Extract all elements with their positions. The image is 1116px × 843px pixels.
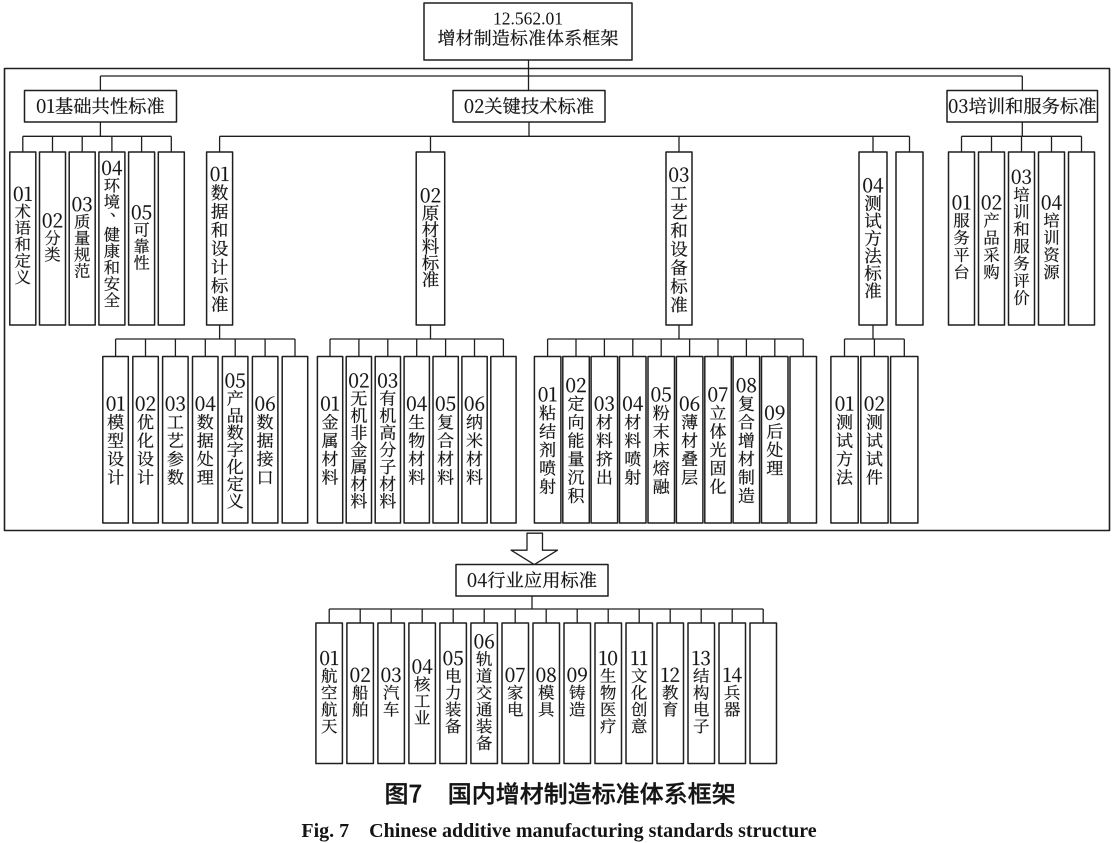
svg-text:Fig. 7 Chinese additive man: Fig. 7 Chinese additive manufacturing st… bbox=[301, 820, 816, 842]
svg-text:12.562.01: 12.562.01 bbox=[493, 9, 563, 29]
